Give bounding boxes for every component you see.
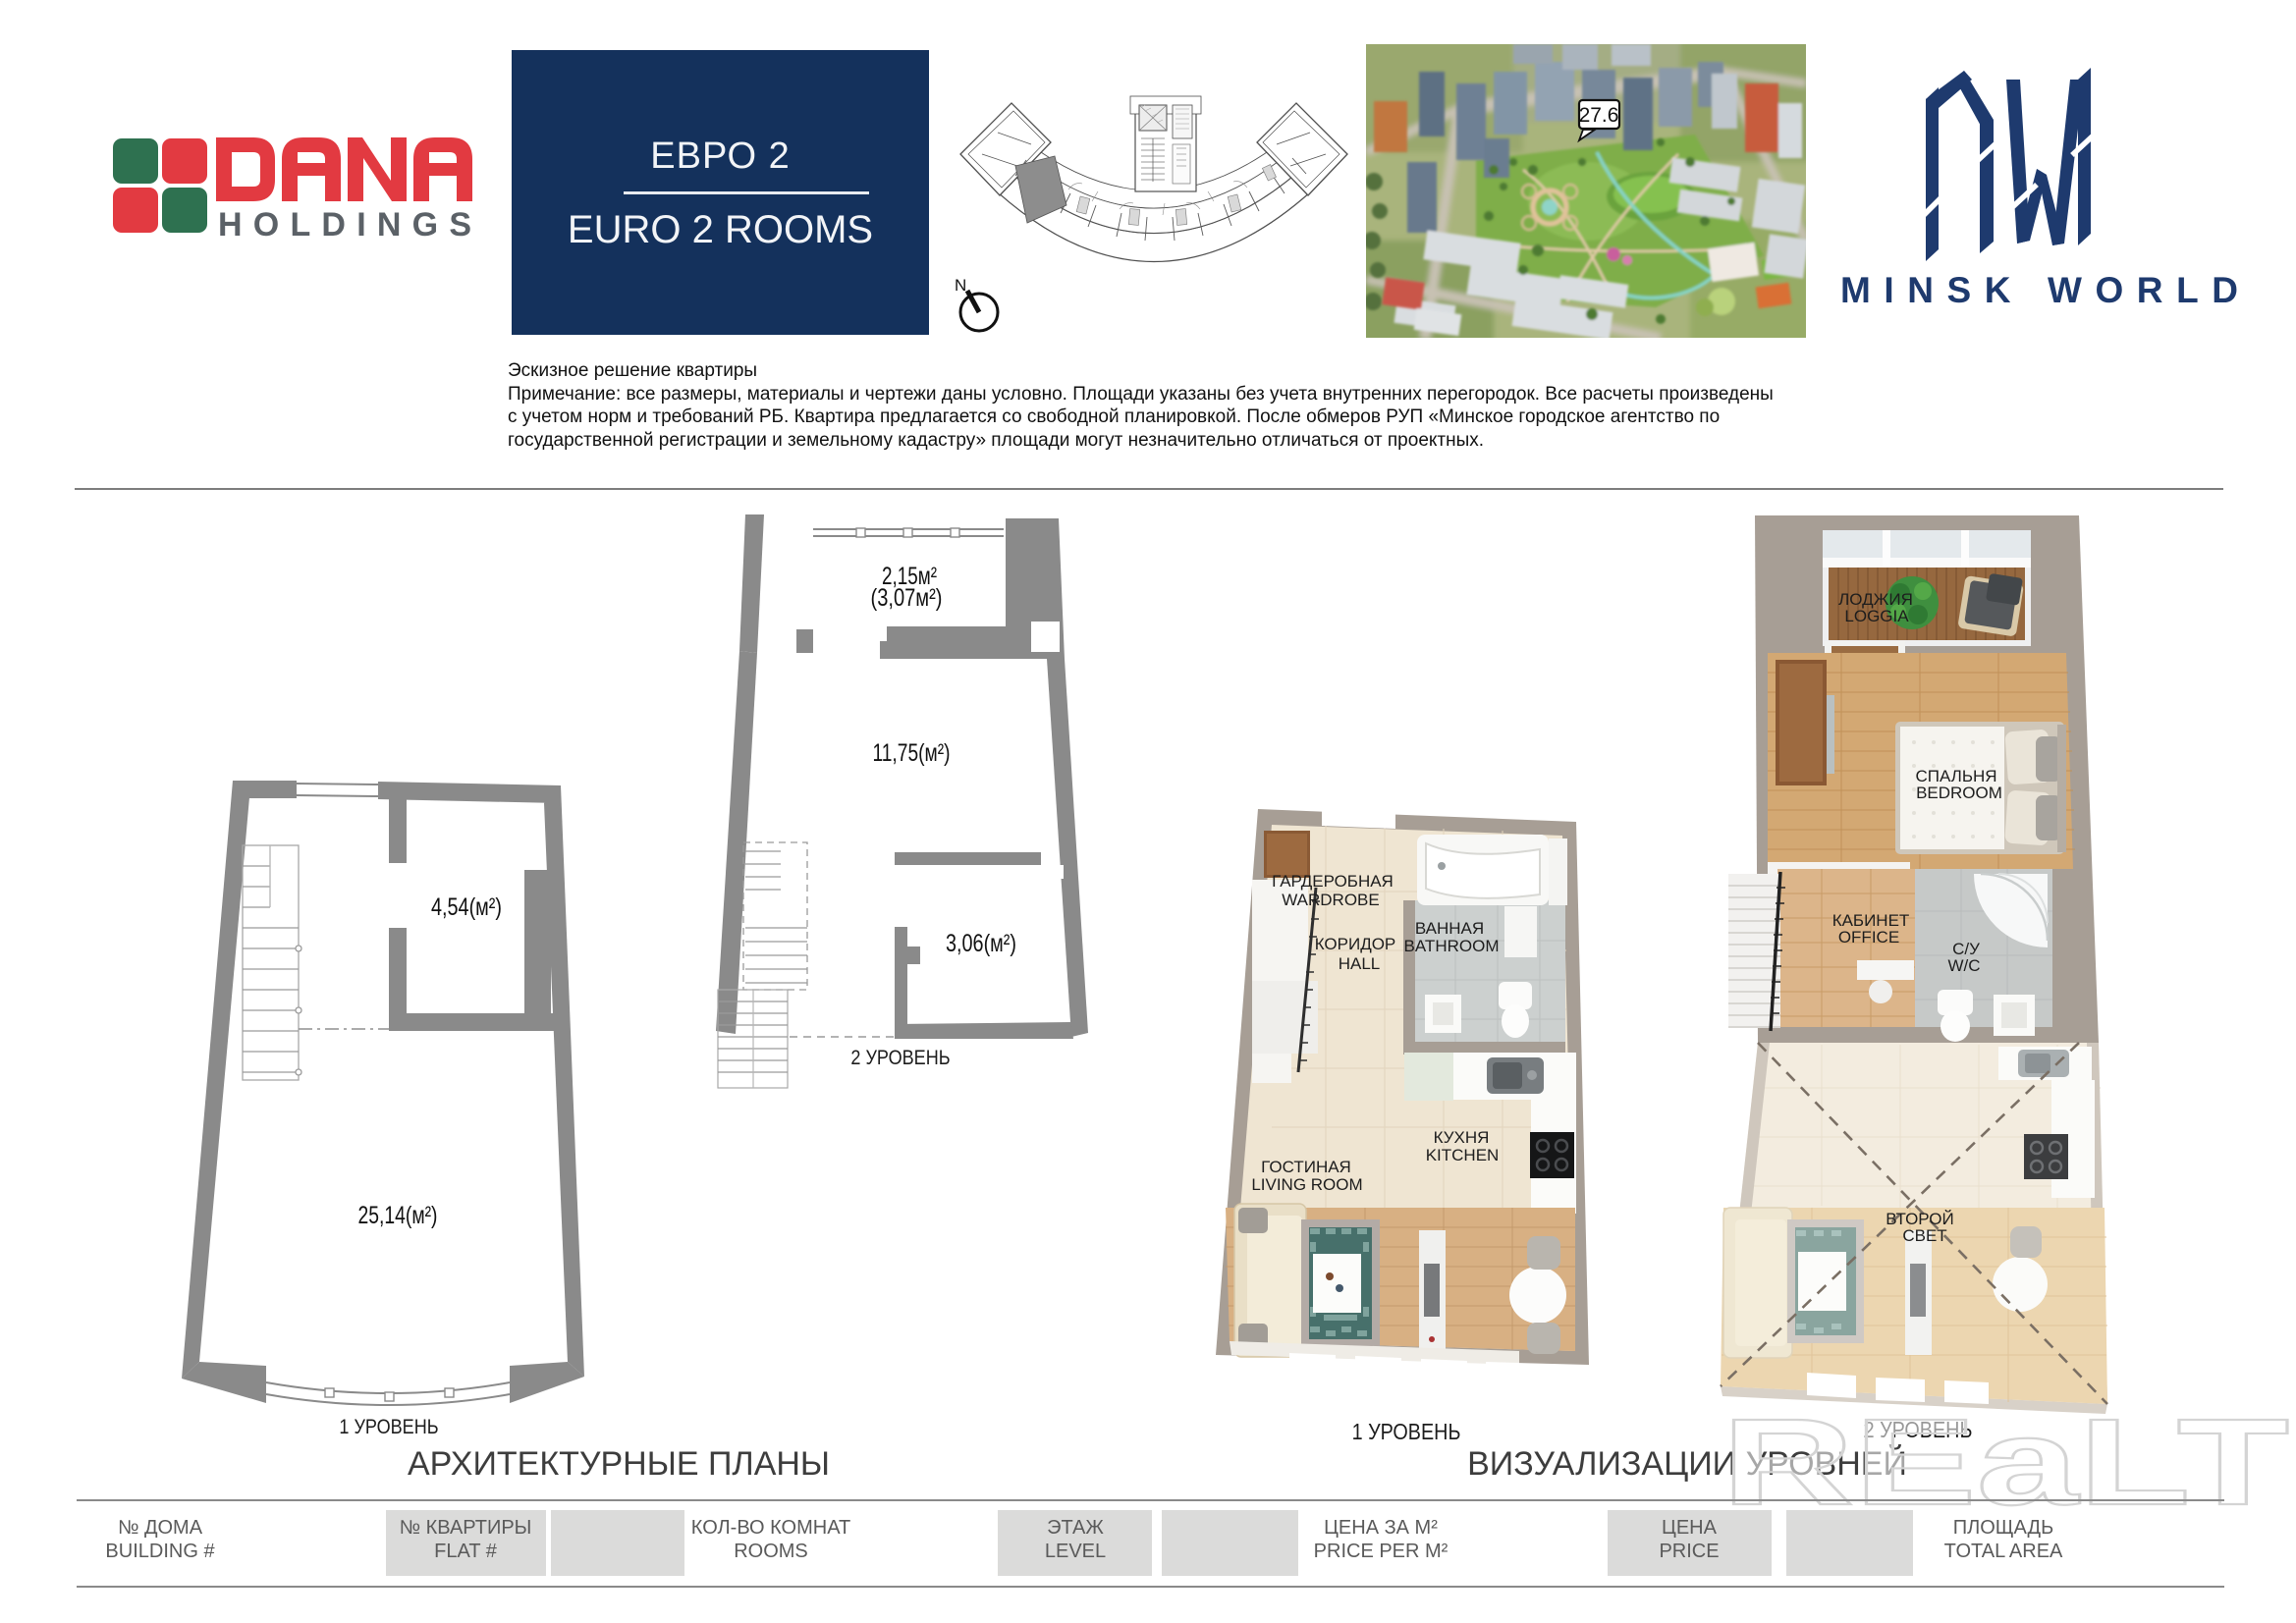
svg-text:КОРИДОР: КОРИДОР [1315, 935, 1396, 953]
svg-text:3,06(м²): 3,06(м²) [946, 930, 1016, 957]
svg-text:WARDROBE: WARDROBE [1282, 891, 1380, 909]
svg-text:ВАННАЯ: ВАННАЯ [1415, 919, 1484, 938]
svg-text:(3,07м²): (3,07м²) [871, 584, 943, 612]
svg-text:KITCHEN: KITCHEN [1426, 1146, 1500, 1164]
svg-text:4,54(м²): 4,54(м²) [431, 893, 502, 921]
svg-text:КУХНЯ: КУХНЯ [1434, 1128, 1490, 1147]
svg-text:27.6: 27.6 [1579, 104, 1619, 127]
svg-text:ГОСТИНАЯ: ГОСТИНАЯ [1261, 1158, 1351, 1176]
svg-text:ГАРДЕРОБНАЯ: ГАРДЕРОБНАЯ [1272, 872, 1394, 891]
svg-text:HOLDINGS: HOLDINGS [218, 206, 471, 243]
svg-text:W/C: W/C [1947, 956, 1980, 975]
svg-text:25,14(м²): 25,14(м²) [358, 1202, 438, 1229]
svg-text:11,75(м²): 11,75(м²) [873, 739, 951, 767]
svg-text:N: N [955, 276, 966, 295]
svg-text:REaLT: REaLT [1722, 1396, 2289, 1529]
svg-text:BATHROOM: BATHROOM [1404, 937, 1500, 955]
svg-text:OFFICE: OFFICE [1838, 928, 1899, 947]
svg-text:MINSK WORLD: MINSK WORLD [1840, 270, 2238, 310]
svg-text:LOGGIA: LOGGIA [1844, 607, 1909, 625]
svg-text:BEDROOM: BEDROOM [1916, 784, 2002, 802]
svg-text:LIVING ROOM: LIVING ROOM [1251, 1175, 1362, 1194]
svg-text:HALL: HALL [1339, 954, 1381, 973]
svg-text:СВЕТ: СВЕТ [1902, 1226, 1946, 1245]
